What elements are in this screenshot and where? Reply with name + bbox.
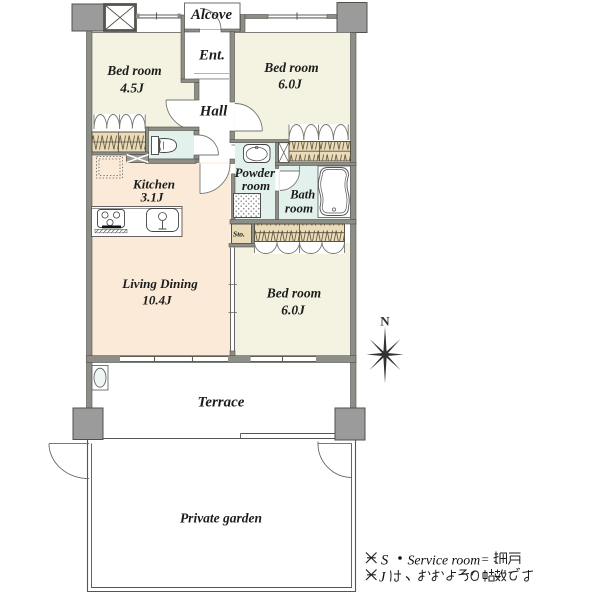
svg-text:10.4J: 10.4J	[142, 293, 172, 308]
svg-text:3.1J: 3.1J	[140, 190, 164, 205]
svg-text:Sto.: Sto.	[233, 230, 245, 239]
svg-text:6.0J: 6.0J	[281, 303, 306, 318]
svg-text:=: =	[482, 552, 489, 567]
svg-text:N: N	[380, 314, 390, 329]
svg-text:Terrace: Terrace	[198, 395, 245, 411]
svg-text:Alcove: Alcove	[190, 7, 233, 23]
svg-text:6.0J: 6.0J	[278, 77, 303, 92]
svg-text:4.5J: 4.5J	[119, 81, 145, 96]
svg-text:Living Dining: Living Dining	[121, 276, 198, 291]
svg-text:Private garden: Private garden	[180, 510, 262, 525]
svg-text:room: room	[242, 178, 270, 193]
svg-text:S: S	[381, 553, 389, 569]
svg-text:Bath: Bath	[289, 188, 315, 202]
svg-text:Hall: Hall	[199, 104, 228, 120]
svg-text:room: room	[285, 201, 313, 216]
svg-text:Ent.: Ent.	[198, 48, 225, 64]
svg-text:Service room: Service room	[408, 553, 481, 568]
svg-text:J: J	[379, 570, 386, 586]
svg-text:Bed room: Bed room	[263, 60, 318, 75]
svg-text:Bed room: Bed room	[106, 63, 161, 78]
svg-text:Bed room: Bed room	[266, 285, 321, 300]
